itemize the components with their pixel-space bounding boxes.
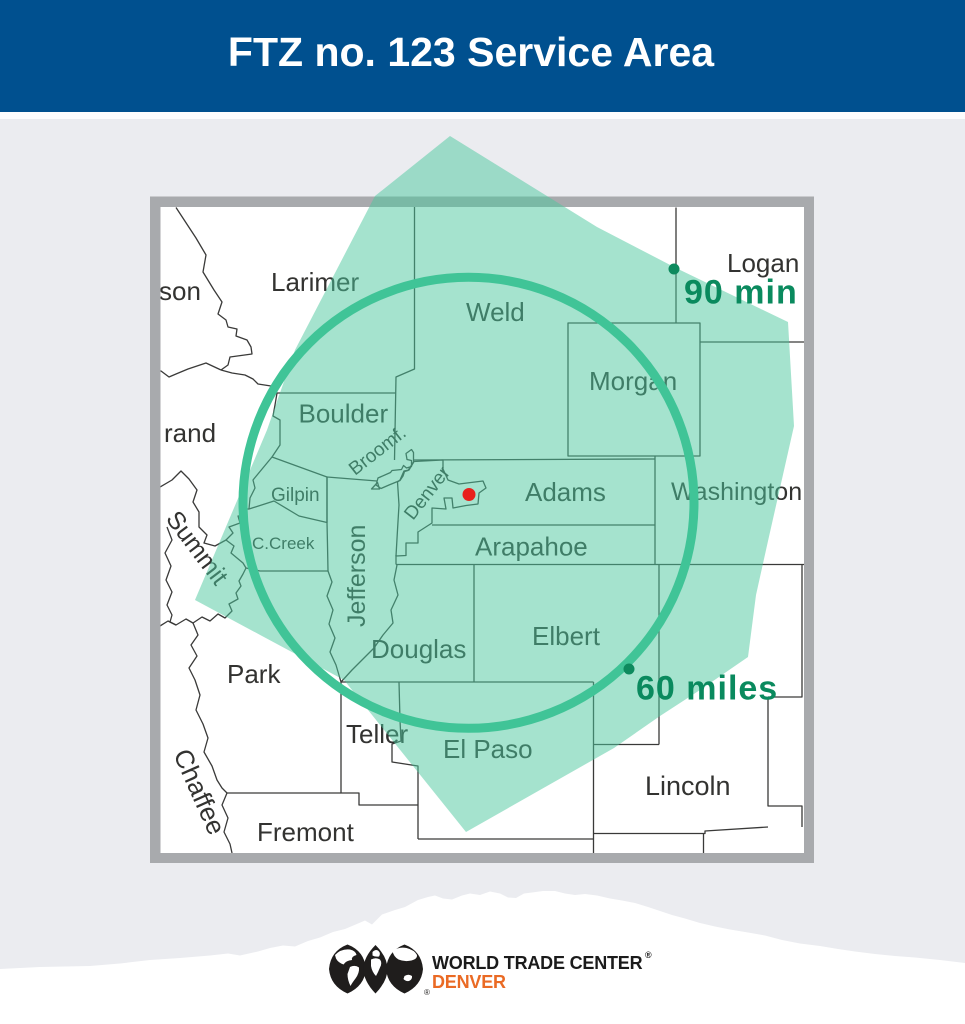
svg-text:90 min: 90 min <box>684 274 798 312</box>
svg-text:®: ® <box>645 950 652 960</box>
svg-text:FTZ no. 123 Service Area: FTZ no. 123 Service Area <box>228 29 715 75</box>
svg-text:Fremont: Fremont <box>257 817 355 847</box>
svg-text:Lincoln: Lincoln <box>645 771 731 801</box>
svg-text:rand: rand <box>164 418 216 448</box>
svg-text:son: son <box>159 276 201 306</box>
svg-text:®: ® <box>424 988 430 997</box>
svg-text:Park: Park <box>227 659 281 689</box>
svg-text:DENVER: DENVER <box>432 972 506 992</box>
svg-text:60 miles: 60 miles <box>636 670 778 708</box>
svg-text:WORLD TRADE CENTER: WORLD TRADE CENTER <box>432 953 643 973</box>
